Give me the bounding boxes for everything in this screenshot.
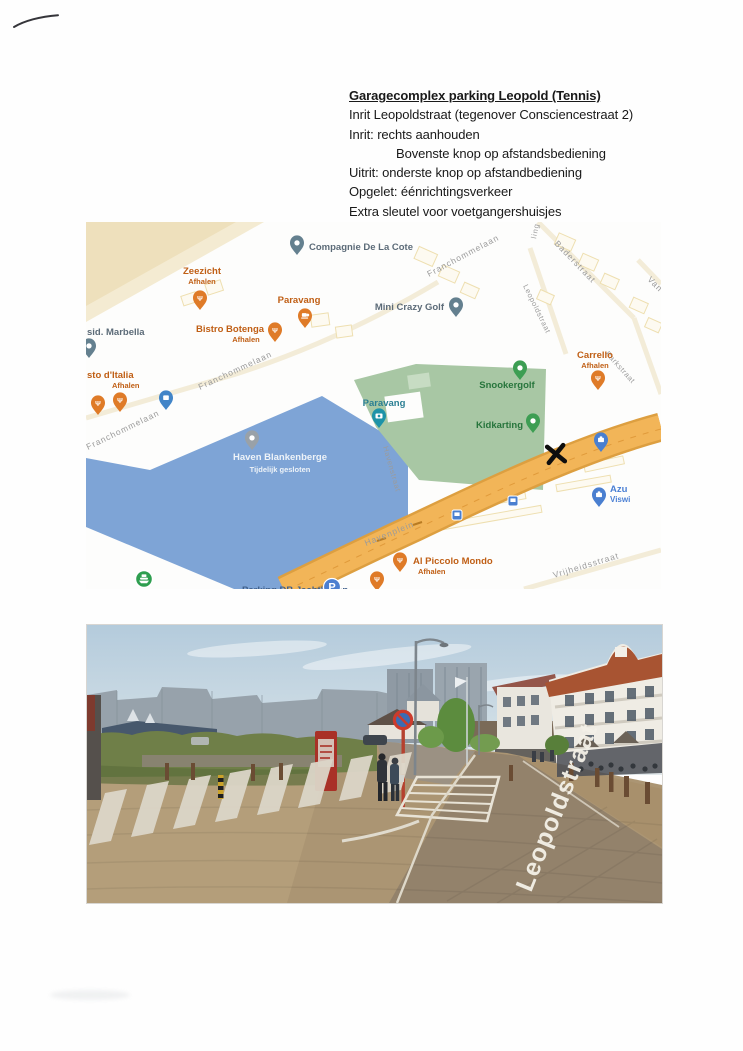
street-label-van: Van: [646, 274, 661, 293]
instruction-line: Uitrit: onderste knop op afstandbedienin…: [349, 163, 709, 182]
transit-stop-icon: [508, 496, 518, 506]
pin-piccolo: Ψ: [393, 552, 407, 572]
poi-label: sto d'Italia: [87, 370, 134, 381]
scan-smudge-artifact: [50, 990, 130, 1000]
street-label-franchommelaan: Franchommelaan: [197, 349, 274, 392]
pin-marbella: [86, 338, 96, 358]
svg-text:Afhalen: Afhalen: [232, 335, 260, 344]
transit-stop-icon: [452, 510, 462, 520]
svg-text:Afhalen: Afhalen: [112, 381, 140, 390]
poi-label: Haven Blankenberge: [233, 452, 327, 463]
scanned-page: Garagecomplex parking Leopold (Tennis) I…: [0, 0, 743, 1051]
generic-poi-icon: [517, 365, 522, 370]
parking-icon: P: [328, 582, 335, 590]
poi-label: Carrello: [577, 350, 613, 361]
instruction-line: Opgelet: éénrichtingsverkeer: [349, 182, 709, 201]
poi-label: Al Piccolo Mondo: [413, 556, 493, 567]
map-canvas: Franchommelaan Franchommelaan Franchomme…: [86, 222, 661, 589]
svg-text:Afhalen: Afhalen: [581, 361, 609, 370]
pin-azur: [592, 487, 606, 507]
pen-stroke-artifact: [0, 0, 120, 50]
poi-label: Paravang: [363, 398, 406, 409]
poi-label: sid. Marbella: [87, 327, 145, 338]
document-title: Garagecomplex parking Leopold (Tennis): [349, 86, 709, 105]
poi-label: Azu: [610, 484, 628, 495]
map-image: Franchommelaan Franchommelaan Franchomme…: [86, 222, 661, 589]
restaurant-icon: Ψ: [374, 577, 380, 584]
pin-compagnie: [290, 235, 304, 255]
pin-paravang-cafe: [298, 308, 312, 328]
instruction-line: Inrit Leopoldstraat (tegenover Conscienc…: [349, 105, 709, 124]
restaurant-icon: Ψ: [595, 376, 601, 383]
camera-icon: [375, 413, 382, 418]
generic-poi-icon: [249, 435, 254, 440]
parked-car: [363, 735, 387, 745]
pin-restaurant-bottom: Ψ: [370, 571, 384, 589]
street-label-leopoldstraat: Leopoldstraat: [521, 283, 553, 335]
bed-icon: [163, 395, 169, 400]
restaurant-icon: Ψ: [197, 296, 203, 303]
poi-label: Snookergolf: [479, 380, 535, 391]
generic-poi-icon: [530, 418, 535, 423]
instruction-line: Extra sleutel voor voetgangershuisjes: [349, 202, 709, 221]
coffee-cup-icon: [301, 313, 309, 318]
restaurant-icon: Ψ: [117, 398, 123, 405]
restaurant-icon: Ψ: [272, 328, 278, 335]
street-view-photo: Leopoldstraat: [86, 624, 663, 904]
svg-text:Afhalen: Afhalen: [418, 567, 446, 576]
generic-poi-icon: [86, 343, 91, 348]
instructions-block: Garagecomplex parking Leopold (Tennis) I…: [349, 86, 709, 221]
poi-label: Zeezicht: [183, 266, 222, 277]
poi-label: Kidkarting: [476, 420, 523, 431]
instruction-line: Inrit: rechts aanhouden: [349, 125, 709, 144]
restaurant-icon: Ψ: [397, 558, 403, 565]
poi-label: Compagnie De La Cote: [309, 242, 413, 253]
generic-poi-icon: [453, 302, 458, 307]
street-label-ling: ling: [529, 222, 541, 239]
restaurant-icon: Ψ: [95, 401, 101, 408]
ferry-icon: [136, 571, 153, 588]
pin-zeezicht: Ψ: [193, 290, 207, 310]
pin-carrello: Ψ: [591, 370, 605, 390]
pin-bistro: Ψ: [268, 322, 282, 342]
poi-label: Mini Crazy Golf: [375, 302, 445, 313]
pin-hotel: [159, 390, 173, 410]
pin-minigolf: [449, 297, 463, 317]
street-view-canvas: Leopoldstraat: [87, 625, 662, 903]
svg-text:Viswi: Viswi: [610, 495, 630, 504]
svg-text:Tijdelijk gesloten: Tijdelijk gesloten: [250, 465, 311, 474]
generic-poi-icon: [294, 240, 299, 245]
striped-bollard: [218, 775, 224, 799]
poi-label: Bistro Botenga: [196, 324, 265, 335]
poi-label: Paravang: [278, 295, 321, 306]
instruction-line: Bovenste knop op afstandsbediening: [349, 144, 709, 163]
svg-text:Afhalen: Afhalen: [188, 277, 216, 286]
